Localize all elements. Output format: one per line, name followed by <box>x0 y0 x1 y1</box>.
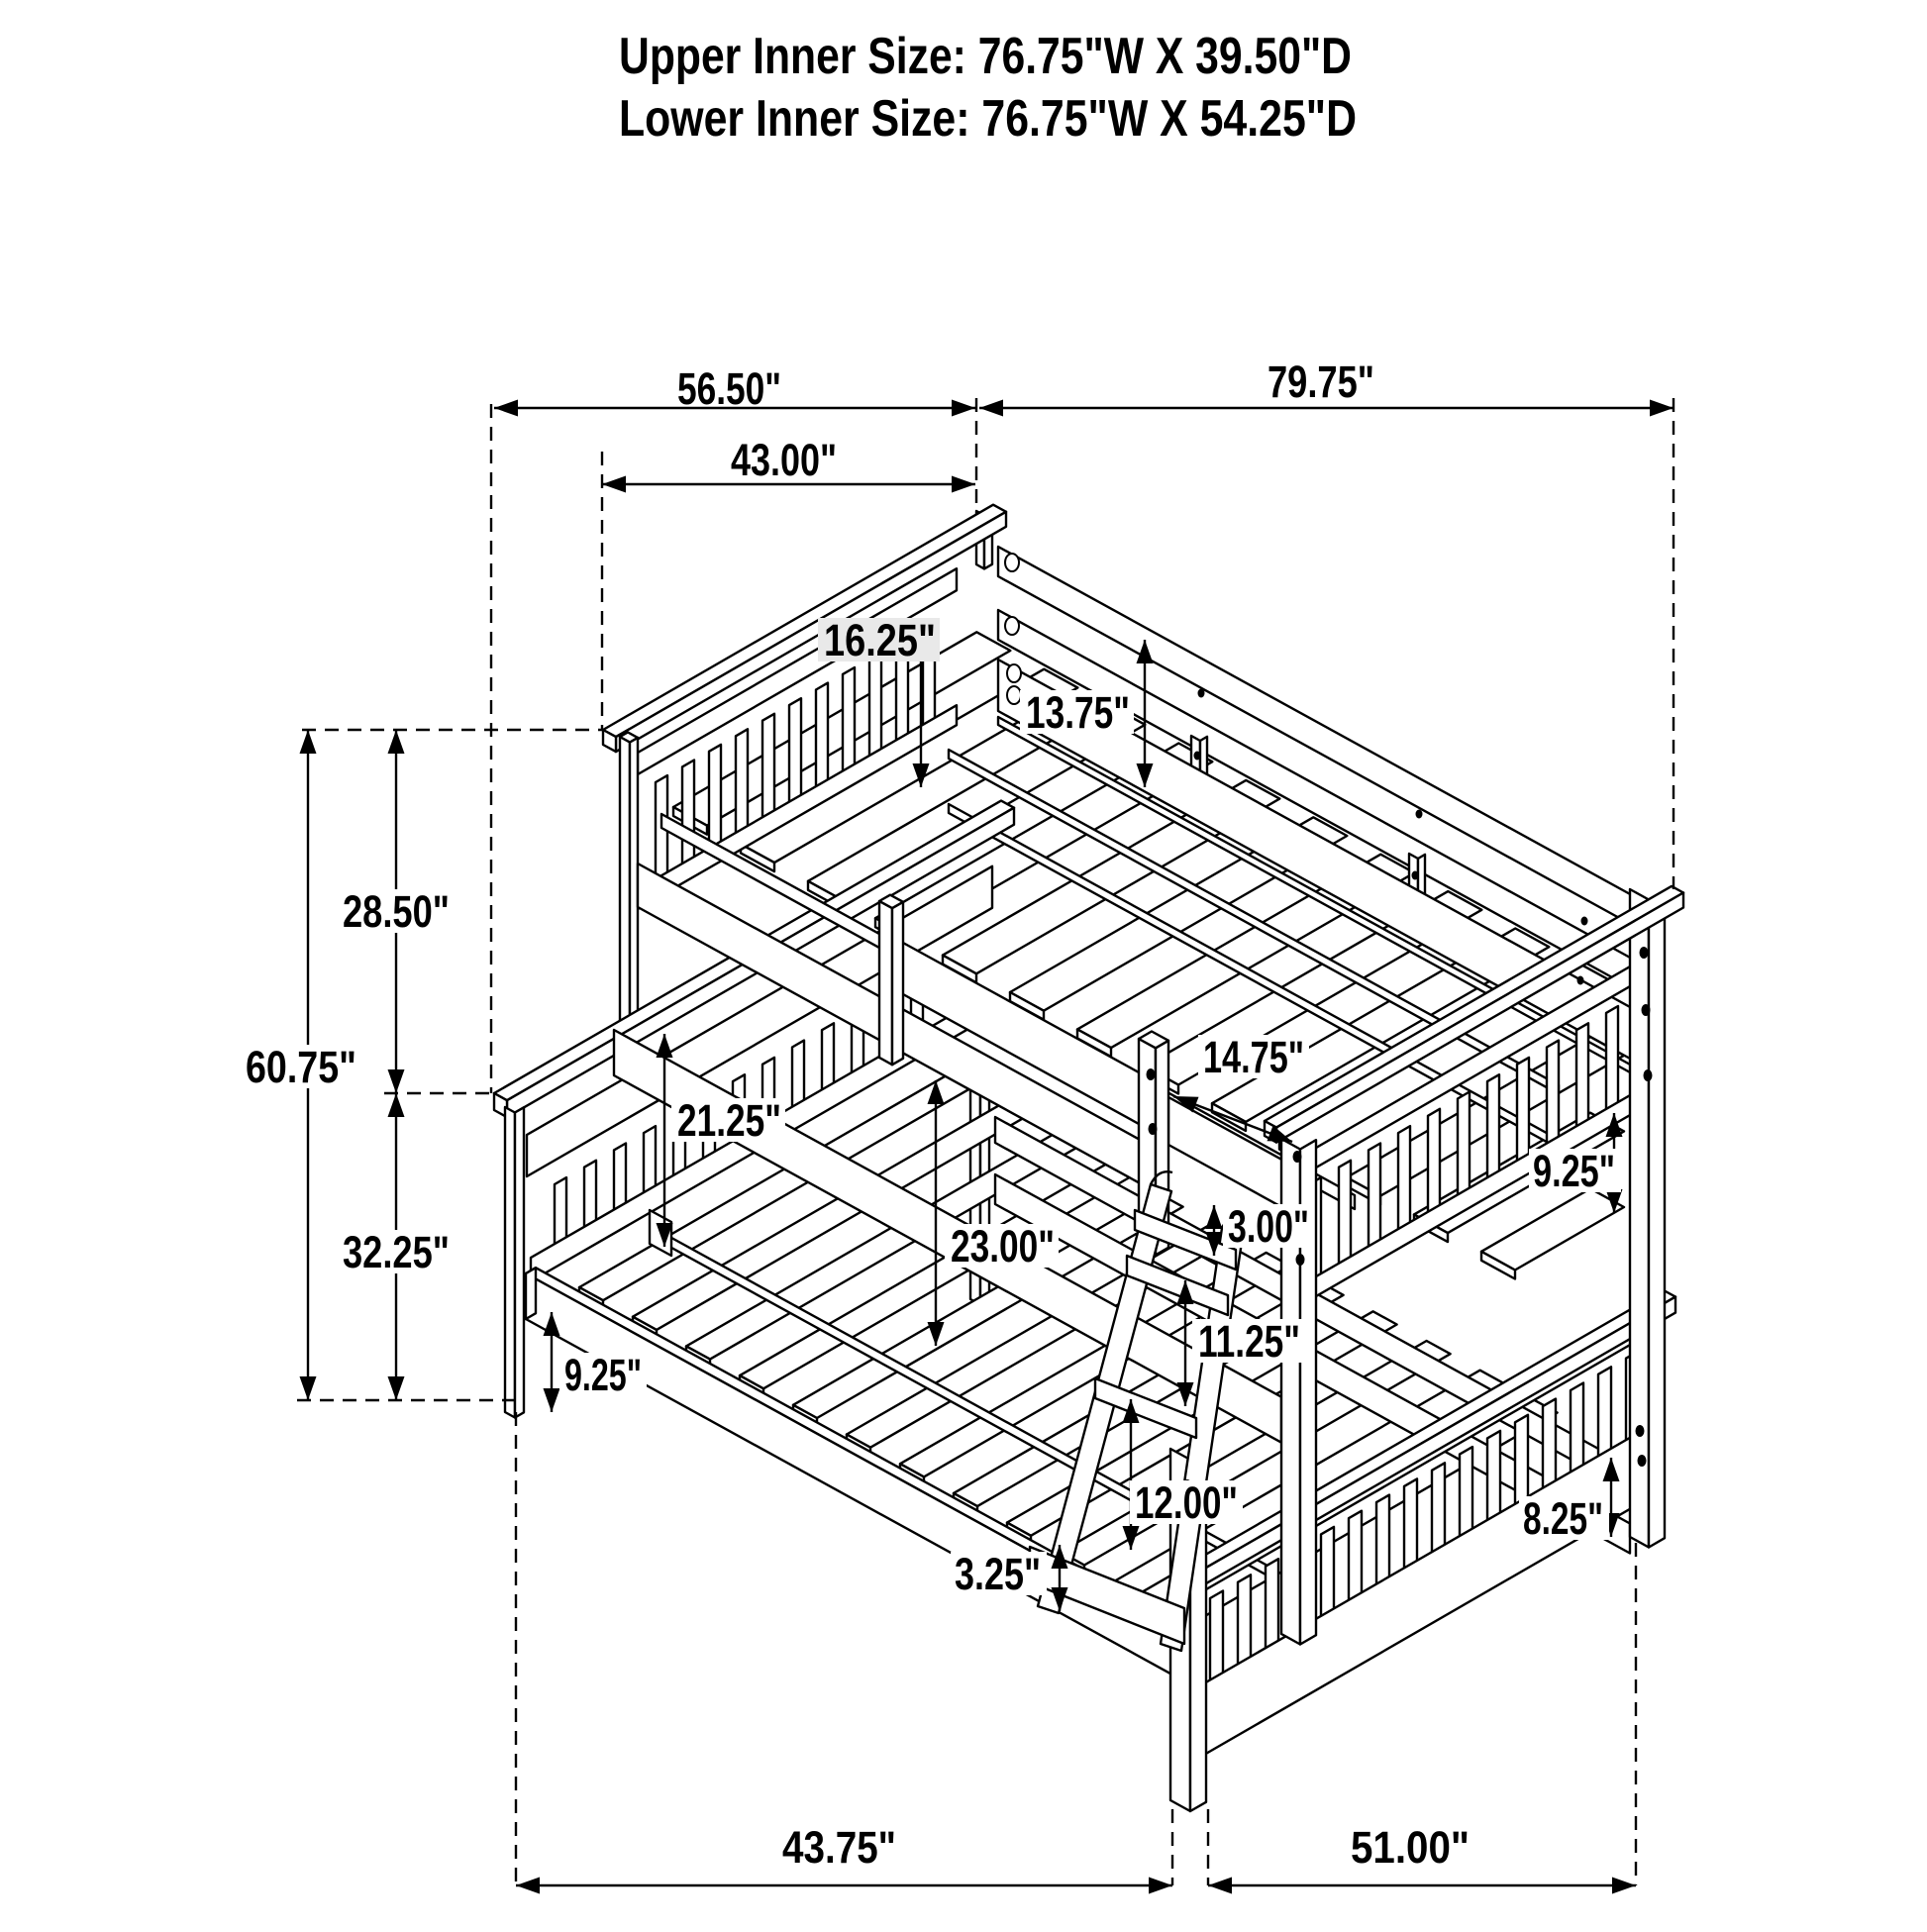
svg-text:3.00": 3.00" <box>1228 1201 1309 1252</box>
svg-text:60.75": 60.75" <box>246 1042 356 1092</box>
svg-text:14.75": 14.75" <box>1203 1032 1304 1082</box>
svg-text:79.75": 79.75" <box>1268 356 1374 407</box>
svg-text:51.00": 51.00" <box>1351 1822 1470 1873</box>
svg-text:56.50": 56.50" <box>677 363 781 414</box>
svg-text:13.75": 13.75" <box>1026 687 1130 738</box>
svg-text:Upper Inner Size: 76.75"W X 39: Upper Inner Size: 76.75"W X 39.50"D <box>619 28 1352 85</box>
svg-text:16.25": 16.25" <box>824 615 936 665</box>
svg-text:8.25": 8.25" <box>1523 1493 1603 1544</box>
svg-text:21.25": 21.25" <box>677 1095 781 1146</box>
svg-text:23.00": 23.00" <box>951 1221 1055 1271</box>
svg-text:43.75": 43.75" <box>782 1822 896 1873</box>
svg-text:9.25": 9.25" <box>564 1350 642 1400</box>
svg-text:11.25": 11.25" <box>1198 1316 1300 1367</box>
svg-text:12.00": 12.00" <box>1135 1477 1238 1528</box>
svg-text:9.25": 9.25" <box>1533 1146 1615 1196</box>
svg-text:28.50": 28.50" <box>343 886 450 937</box>
svg-text:43.00": 43.00" <box>731 435 837 485</box>
svg-text:32.25": 32.25" <box>343 1227 450 1277</box>
svg-text:Lower Inner Size: 76.75"W X 54: Lower Inner Size: 76.75"W X 54.25"D <box>619 90 1357 148</box>
svg-text:3.25": 3.25" <box>955 1549 1041 1599</box>
